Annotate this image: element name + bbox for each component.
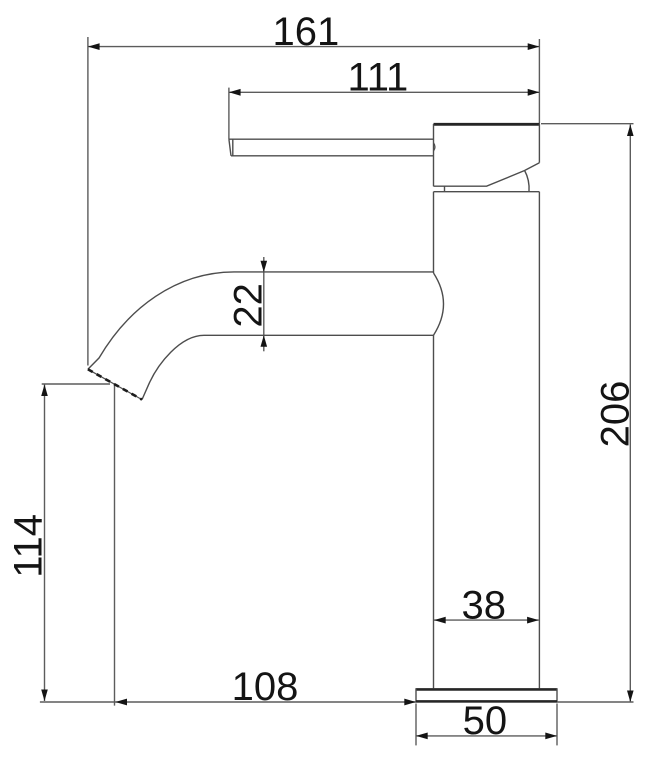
svg-text:108: 108 <box>232 665 299 709</box>
svg-text:22: 22 <box>227 283 271 328</box>
svg-text:161: 161 <box>273 10 340 54</box>
svg-text:111: 111 <box>347 56 408 100</box>
svg-text:114: 114 <box>7 514 51 578</box>
svg-text:50: 50 <box>463 699 508 743</box>
svg-text:38: 38 <box>462 583 507 627</box>
svg-text:206: 206 <box>594 381 638 448</box>
